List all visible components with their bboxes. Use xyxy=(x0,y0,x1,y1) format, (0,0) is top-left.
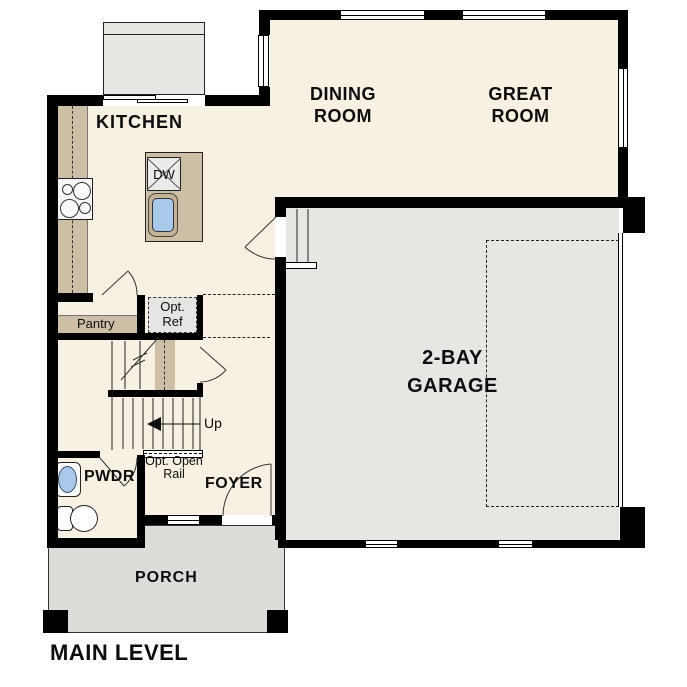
dining-room-label: DINING ROOM xyxy=(293,83,393,127)
window xyxy=(618,68,628,148)
wall-garage-block-top xyxy=(623,197,645,233)
wall-garage-bottom-b xyxy=(398,540,498,548)
window xyxy=(167,515,200,525)
window xyxy=(258,35,269,87)
wall-garage-left-a xyxy=(275,208,286,217)
wall-house-bottom-left xyxy=(47,538,145,548)
plan-title: MAIN LEVEL xyxy=(50,640,188,666)
up-label: Up xyxy=(204,415,222,431)
ceiling-break-line xyxy=(203,337,270,338)
wall-stair-jamb xyxy=(197,383,203,390)
porch-post-left xyxy=(43,610,68,633)
kitchen-sink-basin xyxy=(152,198,174,232)
wall-foyer-front-c xyxy=(272,515,283,525)
window xyxy=(365,540,398,548)
opt-ref-label: Opt. Ref xyxy=(148,299,197,329)
garage-label: 2-BAY GARAGE xyxy=(390,344,515,400)
wall-garage-block-bottom xyxy=(620,507,645,548)
window xyxy=(462,10,546,20)
wall-optref-right xyxy=(197,295,203,337)
opt-open-rail-label: Opt. Open Rail xyxy=(138,455,210,481)
stair-half-wall xyxy=(155,340,175,390)
wall-stair-mid xyxy=(108,390,203,397)
window xyxy=(498,540,533,548)
pwdr-sink-icon xyxy=(58,466,77,493)
wall-top-a xyxy=(259,10,340,20)
window xyxy=(340,10,425,20)
porch-label: PORCH xyxy=(135,569,198,587)
pwdr-label: PWDR xyxy=(84,468,135,486)
stove-burner-icon xyxy=(60,199,79,218)
wall-great-right-a xyxy=(618,10,628,68)
wall-top-c xyxy=(546,10,628,20)
stove-burner-icon xyxy=(73,182,91,200)
wall-dining-left-b xyxy=(259,87,270,106)
kitchen-label: KITCHEN xyxy=(96,112,183,133)
ceiling-break-line xyxy=(203,294,275,295)
wall-pantry-bottom xyxy=(47,333,203,340)
wall-top-b xyxy=(425,10,462,20)
wall-garage-left-b xyxy=(275,257,286,540)
garage-door-side xyxy=(618,233,623,507)
toilet-bowl-icon xyxy=(70,505,98,532)
wall-pwdr-top xyxy=(47,451,100,458)
kitchen-nook xyxy=(103,22,205,95)
porch-post-right xyxy=(267,610,288,633)
dw-label: DW xyxy=(147,167,181,182)
wall-optref-left xyxy=(137,295,145,337)
sliding-door-panel xyxy=(137,99,188,103)
wall-pantry-top xyxy=(47,293,93,302)
wall-left-outer xyxy=(47,95,58,548)
stove-burner-icon xyxy=(79,202,91,214)
wall-kitchen-top-a xyxy=(47,95,103,106)
pantry-label: Pantry xyxy=(77,316,115,331)
foyer-label: FOYER xyxy=(205,475,263,493)
wall-foyer-front-a xyxy=(145,515,167,525)
wall-garage-bottom-a xyxy=(278,540,365,548)
great-room-label: GREAT ROOM xyxy=(468,83,573,127)
floor-plan: KITCHEN DINING ROOM GREAT ROOM 2-BAY GAR… xyxy=(0,0,687,687)
wall-great-garage-divider xyxy=(275,197,623,208)
garage-step xyxy=(284,262,317,269)
wall-foyer-front-b xyxy=(200,515,222,525)
stove-burner-icon xyxy=(62,184,73,195)
